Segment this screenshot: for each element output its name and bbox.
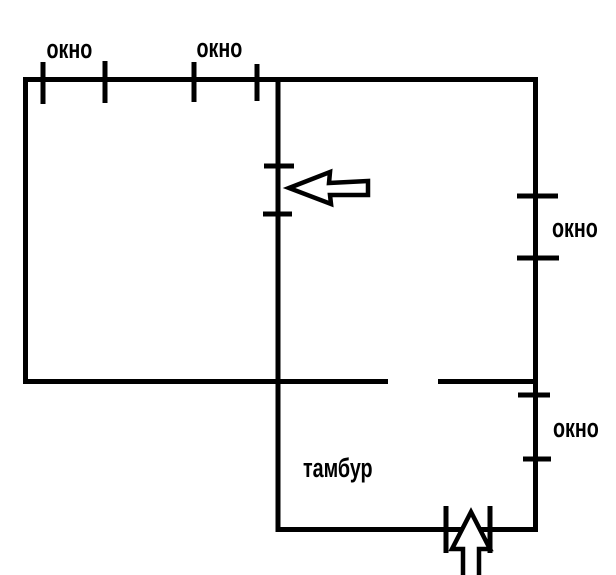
window-label-right-upper: окно — [552, 214, 598, 244]
vestibule-label: тамбур — [303, 454, 373, 484]
walls — [23, 77, 538, 532]
window-label-right-lower: окно — [553, 414, 599, 444]
window-label-top-1: окно — [47, 35, 93, 65]
floor-plan-drawing: окно окно окно окно тамбур — [0, 0, 616, 575]
labels: окно окно окно окно тамбур — [47, 34, 599, 484]
left-arrow-icon — [289, 172, 368, 204]
window-label-top-2: окно — [197, 34, 243, 64]
up-arrow-icon — [452, 512, 490, 575]
arrows — [289, 172, 490, 575]
floor-plan: окно окно окно окно тамбур — [0, 0, 616, 575]
opening-ticks — [43, 61, 559, 553]
